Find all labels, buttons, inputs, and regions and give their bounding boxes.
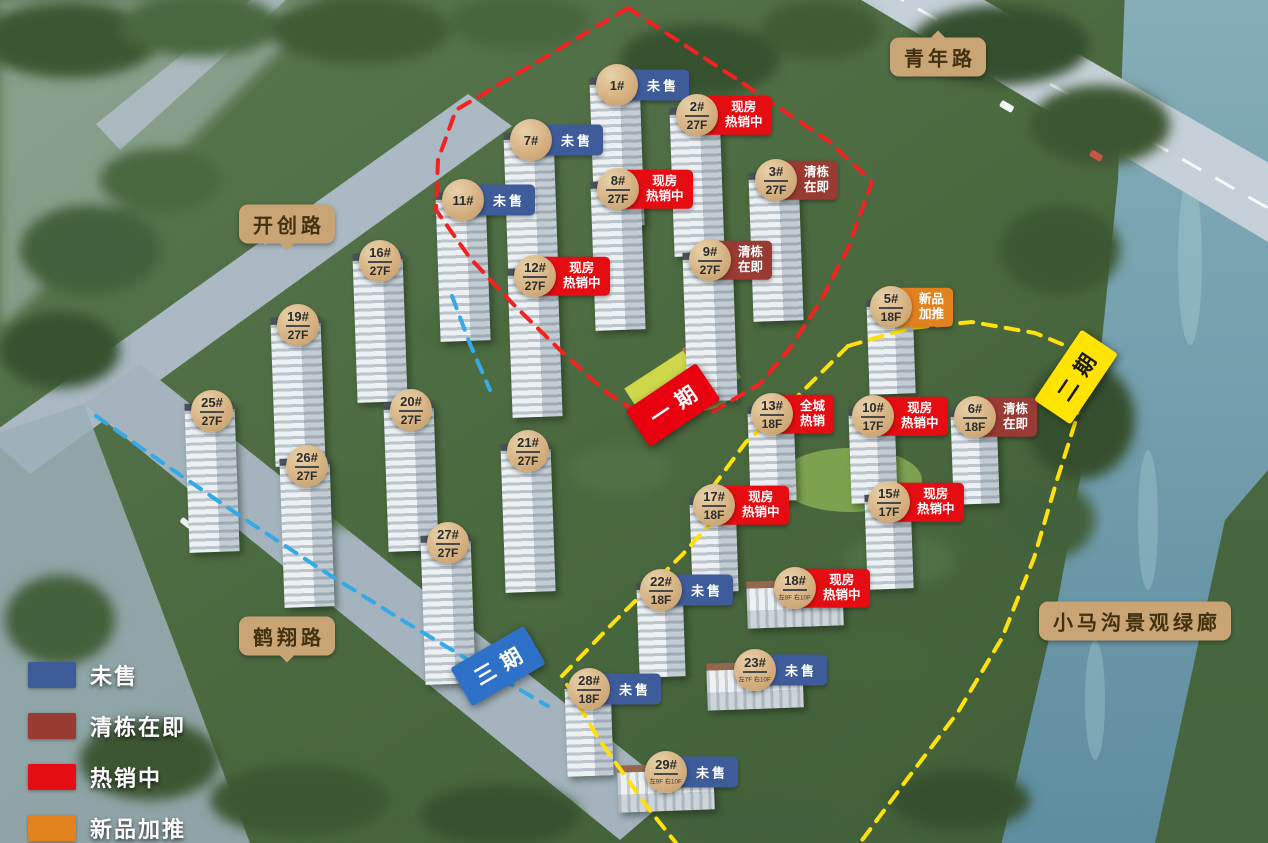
legend: 未售 清栋在即 热销中 新品加推 (28, 659, 186, 843)
road-label: 小马沟景观绿廊 (1039, 602, 1231, 641)
site-plan-map: 未售 1# 未售 7# 现房热销中 2# 27F 现房热销中 8# 27F (0, 0, 1268, 843)
road-label: 鹤翔路 (239, 617, 335, 656)
road-labels-layer: 青年路 开创路 鹤翔路 小马沟景观绿廊 (0, 0, 1268, 843)
legend-label: 清栋在即 (90, 710, 186, 742)
road-label: 开创路 (239, 205, 335, 244)
legend-row: 清栋在即 (28, 710, 186, 742)
legend-label: 热销中 (90, 761, 162, 793)
legend-row: 未售 (28, 659, 186, 691)
legend-swatch (28, 713, 76, 739)
road-label: 青年路 (890, 38, 986, 77)
legend-row: 热销中 (28, 761, 186, 793)
road-name: 小马沟景观绿廊 (1053, 613, 1221, 635)
legend-swatch (28, 662, 76, 688)
road-name: 鹤翔路 (253, 628, 325, 650)
road-name: 青年路 (904, 49, 976, 71)
road-label-pointer (279, 243, 295, 259)
legend-label: 未售 (90, 659, 138, 691)
legend-swatch (28, 815, 76, 841)
road-label-pointer (930, 23, 946, 39)
road-name: 开创路 (253, 216, 325, 238)
legend-row: 新品加推 (28, 812, 186, 843)
legend-label: 新品加推 (90, 812, 186, 843)
road-label-pointer (279, 655, 295, 671)
legend-swatch (28, 764, 76, 790)
